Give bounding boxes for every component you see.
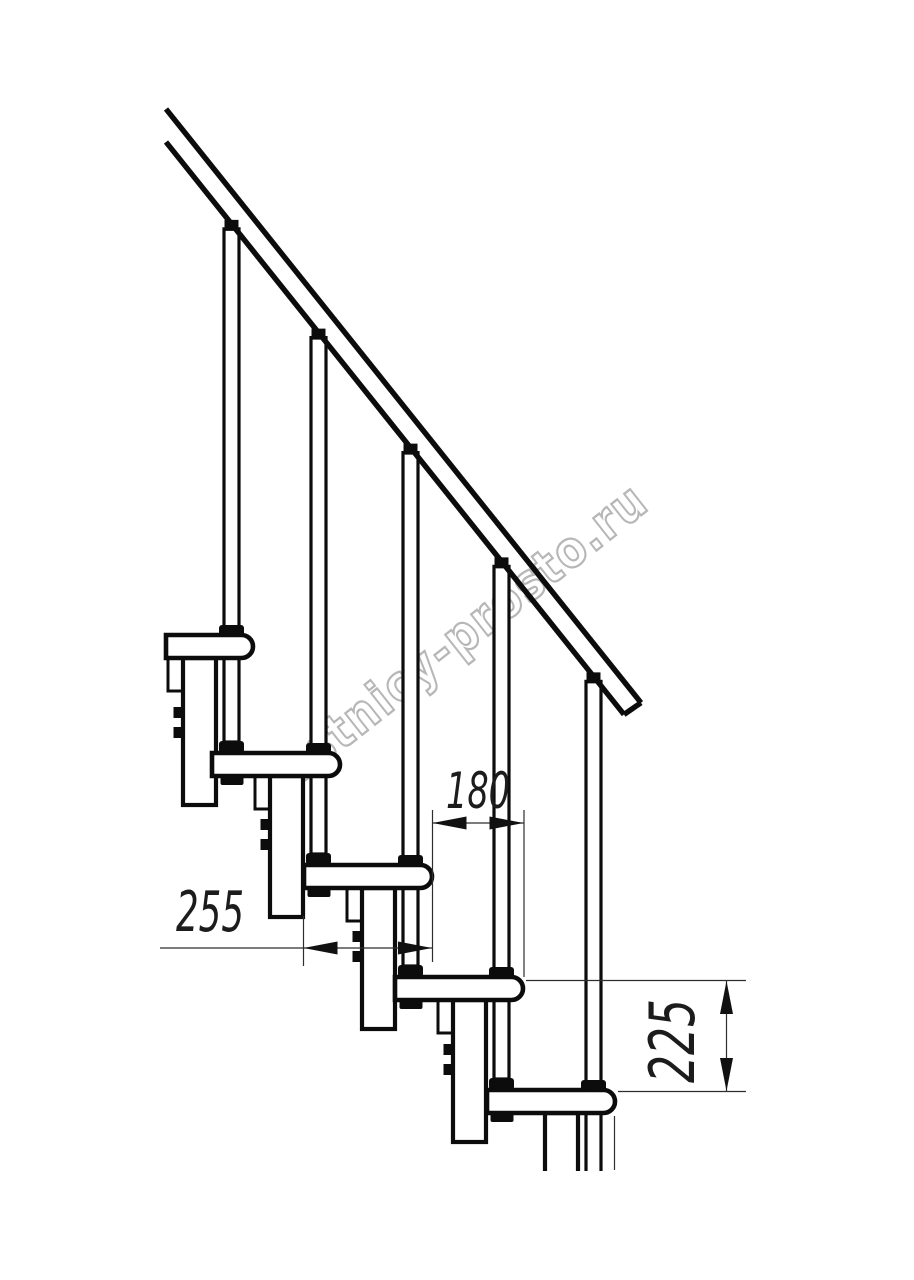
support-module [545,1113,578,1175]
bolt-tab [444,1064,454,1075]
tread [304,865,432,888]
through-post [494,998,509,1079]
baluster [403,453,418,865]
through-post [311,774,326,854]
dimension-arrow [304,942,338,955]
through-post [224,656,239,742]
step-1 [166,220,253,805]
bolt-tab [174,727,184,738]
baluster-foot-flange [306,743,331,754]
dimension-arrow [720,1058,733,1091]
technical-drawing-canvas: lestnicy-prosto.ru255180225 [0,0,914,1280]
module-notch [438,1000,453,1033]
dim-label-tread-depth: 255 [176,880,244,945]
baluster-foot-flange [581,1080,606,1091]
baluster-foot-flange [398,855,423,866]
dim-label-step-run: 180 [446,762,510,820]
tread [487,1090,615,1113]
through-post [586,1113,601,1175]
baluster [224,229,239,635]
baluster-foot-flange [489,967,514,978]
tread [212,753,340,776]
through-post [403,886,418,966]
bolt-tab [353,951,363,962]
tread [395,977,523,1000]
handrail-end-cap [624,703,641,715]
support-module [183,658,216,805]
bolt-tab [261,819,271,830]
support-module [362,888,395,1029]
tread [166,635,253,658]
baluster [586,681,601,1090]
support-module [270,776,303,917]
support-module [453,1000,486,1142]
stair-drawing-svg: lestnicy-prosto.ru255180225 [0,0,914,1280]
module-notch [168,658,183,691]
module-notch [347,888,362,921]
bolt-tab [353,931,363,942]
dimension-arrow [720,981,733,1014]
bolt-tab [444,1044,454,1055]
baluster-foot-flange [219,625,244,636]
dim-label-step-rise: 225 [636,999,709,1083]
bolt-tab [174,707,184,718]
crop-mask [536,1171,610,1185]
baluster [311,338,326,753]
bolt-tab [261,839,271,850]
